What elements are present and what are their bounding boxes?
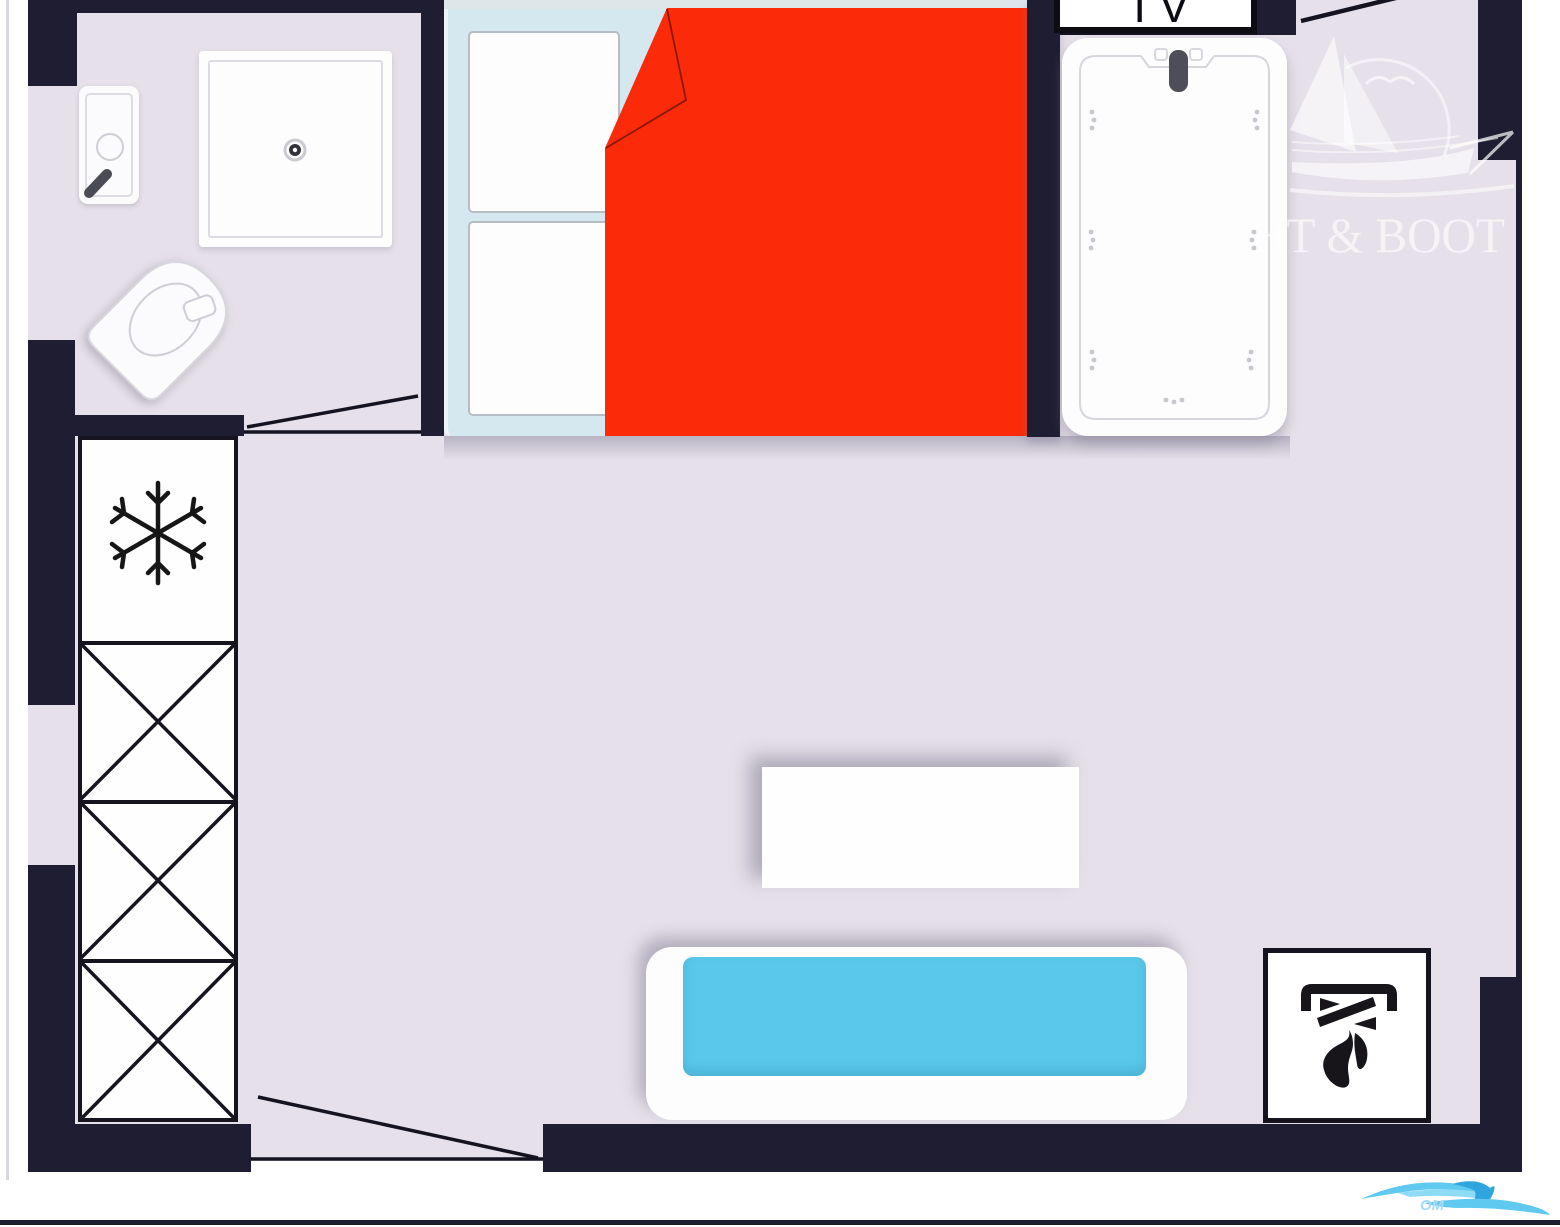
svg-text:TV: TV bbox=[1126, 0, 1195, 32]
svg-text:OM: OM bbox=[1420, 1197, 1445, 1214]
svg-text:HT & BOOT: HT & BOOT bbox=[1252, 207, 1505, 263]
